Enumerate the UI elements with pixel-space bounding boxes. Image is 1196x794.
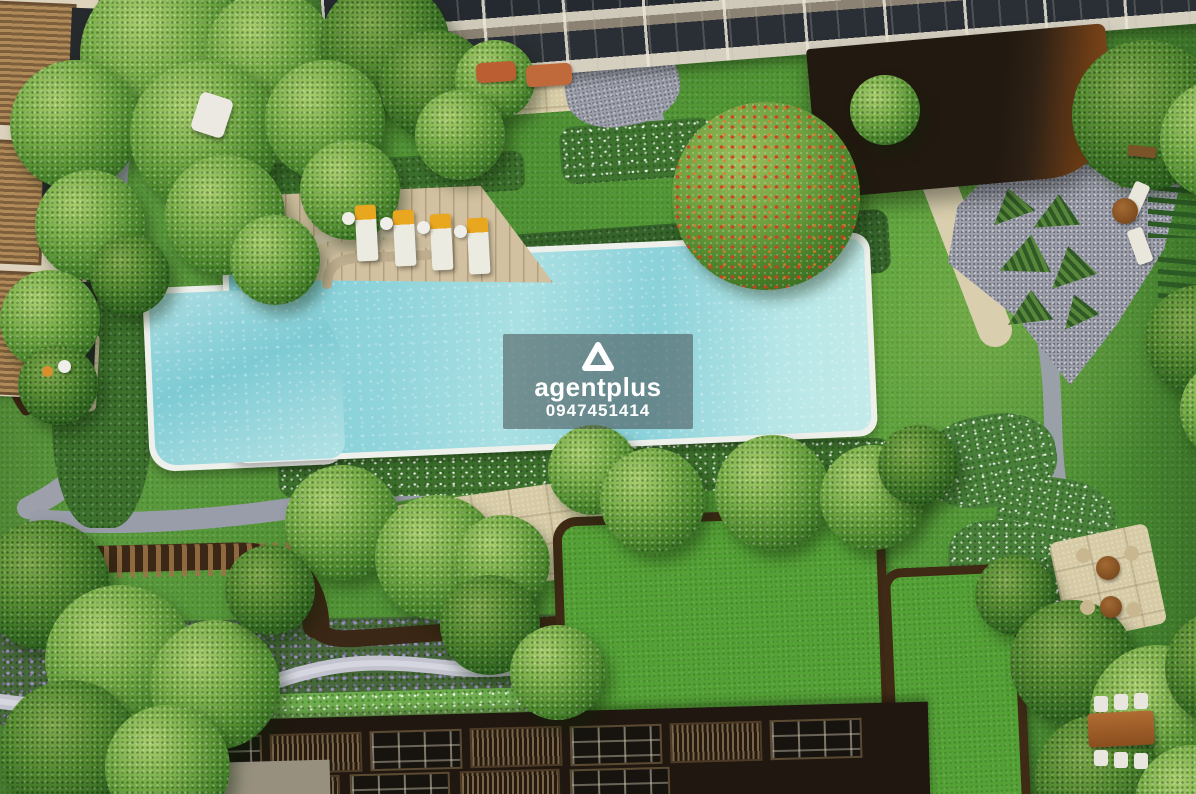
flowering-tree — [672, 102, 860, 290]
sun-lounger — [355, 204, 379, 261]
wicker-chair — [1076, 548, 1091, 563]
wicker-chair — [1126, 602, 1141, 617]
sun-lounger — [467, 217, 491, 274]
tree — [850, 75, 920, 145]
tree — [90, 235, 170, 315]
bottom-building-skylight — [569, 724, 662, 766]
tree — [230, 215, 320, 305]
tree — [510, 625, 605, 720]
dining-chair — [1134, 693, 1148, 709]
tree — [600, 448, 705, 553]
dining-chair — [1094, 750, 1108, 766]
tree — [18, 345, 98, 425]
watermark-overlay: agentplus 0947451414 — [503, 334, 693, 429]
garden-round-table — [1112, 198, 1138, 224]
deck-table — [58, 360, 71, 373]
bottom-building-skylight-row2 — [570, 767, 671, 794]
tree — [878, 425, 958, 505]
dining-chair — [1134, 753, 1148, 769]
tree — [10, 60, 140, 190]
bottom-building-louver — [669, 721, 762, 763]
sun-lounger — [393, 209, 417, 266]
tree — [715, 435, 830, 550]
aerial-courtyard-render: agentplus 0947451414 — [0, 0, 1196, 794]
wicker-chair — [1080, 600, 1095, 615]
dining-table — [1087, 710, 1155, 747]
bottom-building-skylight-row2 — [350, 772, 451, 794]
watermark-brand: agentplus — [534, 374, 661, 401]
dining-chair — [1094, 696, 1108, 712]
side-table — [417, 221, 430, 234]
dining-chair — [1114, 694, 1128, 710]
outdoor-sofa — [475, 61, 516, 84]
sun-lounger — [430, 213, 454, 270]
wicker-chair — [1124, 546, 1139, 561]
bottom-building-louver — [469, 726, 562, 768]
bottom-building-skylight — [769, 718, 862, 760]
watermark-phone: 0947451414 — [546, 401, 651, 421]
side-table — [454, 225, 467, 238]
tree — [415, 90, 505, 180]
patio-round-table-2 — [1100, 596, 1122, 618]
deck-cushion — [42, 366, 53, 377]
patio-round-table — [1096, 556, 1120, 580]
agentplus-logo-icon — [581, 342, 615, 372]
bottom-building-skylight — [369, 729, 462, 771]
side-table — [380, 217, 393, 230]
bottom-building-louver-row2 — [460, 769, 561, 794]
tree — [225, 545, 315, 635]
side-table — [342, 212, 355, 225]
outdoor-sofa — [525, 62, 572, 87]
dining-chair — [1114, 752, 1128, 768]
